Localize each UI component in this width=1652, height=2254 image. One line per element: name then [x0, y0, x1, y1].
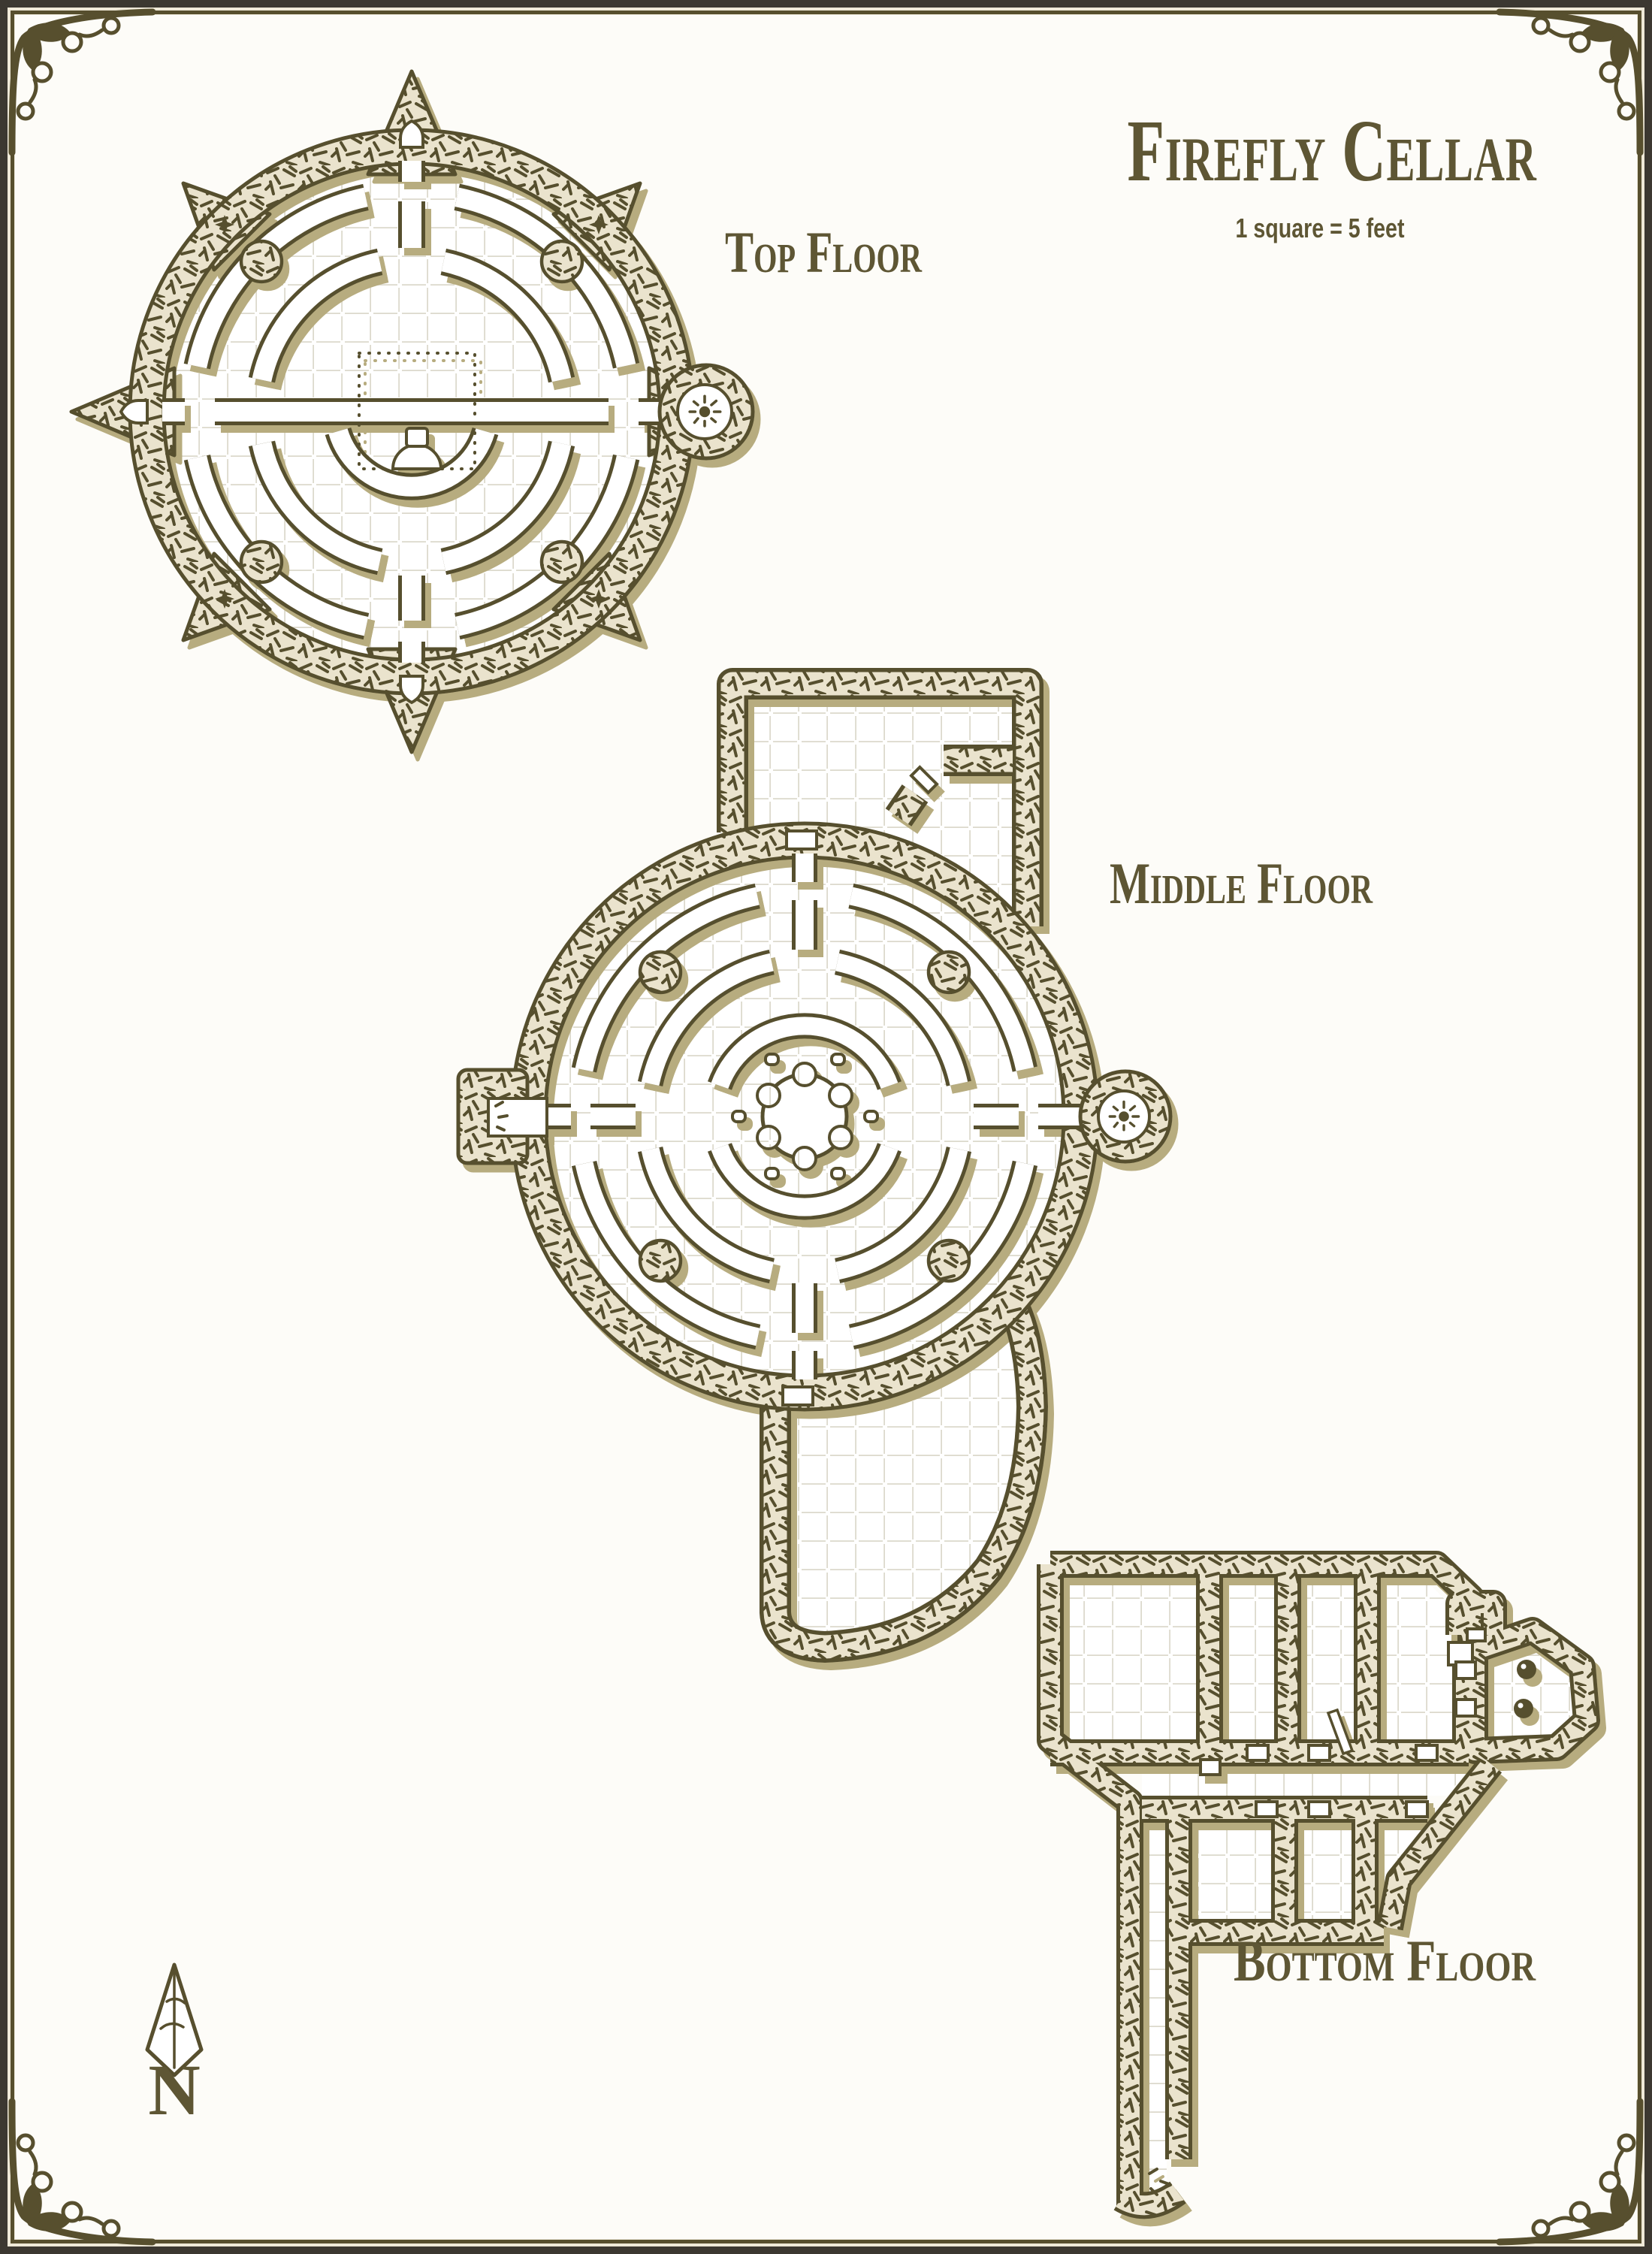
middle-floor-label: Middle Floor — [1110, 851, 1373, 916]
top-floor-label: Top Floor — [725, 219, 923, 285]
map-scale-note: 1 square = 5 feet — [1236, 213, 1405, 243]
map-page: Firefly Cellar 1 square = 5 feet Top Flo… — [0, 0, 1652, 2254]
east-alcove — [1080, 1071, 1170, 1162]
altar — [406, 428, 427, 446]
compass-letter: N — [148, 2050, 200, 2130]
map-title: Firefly Cellar — [1128, 101, 1537, 200]
brazier-icon — [690, 396, 720, 426]
firefly-cellar-map: Firefly Cellar 1 square = 5 feet Top Flo… — [0, 0, 1652, 2254]
brazier-icon — [1110, 1101, 1138, 1129]
east-alcove — [660, 365, 753, 458]
bottom-floor-label: Bottom Floor — [1234, 1928, 1536, 1993]
